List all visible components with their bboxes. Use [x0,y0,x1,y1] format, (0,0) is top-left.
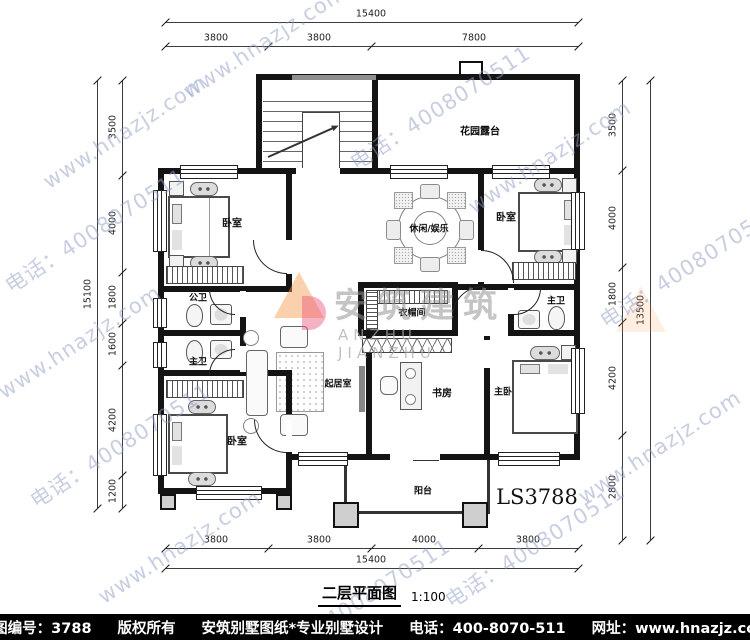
room-label-garden-terrace: 花园露台 [460,123,500,138]
dim-line [97,80,98,508]
dim-tick [118,361,126,369]
footer-site: 网址：www.hnazjz.com [592,617,750,638]
footer-copyright: 版权所有 [118,617,176,638]
bed [512,360,578,434]
dim-line [165,568,578,569]
dim-value: 1600 [108,332,119,356]
dim-tick [574,564,582,572]
bed [168,414,228,474]
dim-tick [618,536,626,544]
dim-value: 15400 [356,555,386,566]
dim-tick [574,544,582,552]
dim-tick [264,42,272,50]
toilet [186,304,203,327]
window [153,342,167,368]
door-arc [254,420,287,453]
dim-value: 4000 [412,535,436,546]
drawing-scale: 1:100 [411,590,446,607]
wall [358,282,458,288]
footer-number: 本图编号：3788 [0,617,92,638]
chair [420,184,440,199]
nightstand [562,178,577,193]
logo-triangle-icon [274,272,324,318]
nightstand-lamp [190,182,218,196]
room-label-leisure: 休闲/娱乐 [409,222,448,235]
room-label-bedroom-tr: 卧室 [496,209,516,224]
window [196,486,262,500]
desk-item [405,394,416,405]
dim-tick [118,76,126,84]
dim-line [622,80,623,540]
wall [358,330,458,336]
footer-phone: 电话：400-8070-511 [409,617,565,638]
wall [256,74,262,174]
window [153,414,167,476]
desk-chair [380,376,398,395]
dim-tick [574,18,582,26]
dim-tick [161,564,169,572]
window [390,165,448,179]
door-gap [240,346,246,372]
dim-tick [646,76,654,84]
window [153,190,167,252]
drawing-title: 二层平面图 [318,582,401,607]
room-label-bedroom-tl: 卧室 [222,215,242,230]
chair [394,247,413,264]
dim-value: 4200 [108,408,119,432]
window [153,298,167,328]
room-label-master-bath-left: 主卫 [189,355,207,368]
dim-value: 3800 [204,33,228,44]
balcony-slider-gap [390,454,440,460]
dim-value: 13500 [636,295,647,325]
door-arc [253,240,287,274]
nightstand [169,181,184,196]
rug [276,352,324,412]
dim-tick [618,263,626,271]
dim-tick [161,42,169,50]
dim-value: 3800 [516,535,540,546]
dim-value: 3800 [204,535,228,546]
pillow [172,204,182,224]
desk-lamp [405,368,416,379]
bed [168,196,230,258]
window [180,165,238,179]
door-gap [484,340,490,368]
wardrobe [368,290,448,304]
room-label-balcony: 阳台 [414,484,432,497]
dim-tick [367,544,375,552]
side-table [243,330,259,346]
porch-post [160,494,176,510]
window [492,165,550,179]
dim-value: 15400 [356,9,386,20]
dim-tick [618,431,626,439]
dim-value: 15100 [83,279,94,309]
door-arc [481,250,514,283]
nightstand-lamp [530,346,560,360]
dim-line [165,46,578,47]
dim-tick [618,76,626,84]
railing-screen [362,338,452,353]
room-label-bedroom-bl: 卧室 [227,433,247,448]
window [498,452,560,466]
wardrobe [166,380,244,398]
room-label-living: 起居室 [324,377,351,390]
dim-line [165,548,578,549]
chair [420,257,440,272]
dim-value: 1800 [108,285,119,309]
stair-landing [302,112,340,170]
chair [447,192,466,209]
dim-tick [618,166,626,174]
dim-tick [93,76,101,84]
dim-value: 3800 [307,535,331,546]
dim-value: 3500 [108,115,119,139]
dim-value: 4000 [108,211,119,235]
door-gap [296,168,340,174]
watermark-text: www.hnazjz.com [94,485,266,608]
dim-tick [618,318,626,326]
chair [386,220,401,240]
tv-cabinet [359,366,365,412]
dim-value: 2800 [608,475,619,499]
footer-bar: 本图编号：3788 版权所有 安筑别墅图纸*专业别墅设计 电话：400-8070… [0,614,750,640]
dim-tick [118,471,126,479]
pillow [172,422,182,441]
room-label-public-bath: 公卫 [189,291,207,304]
dim-value: 4200 [608,366,619,390]
dim-value: 3500 [608,113,619,137]
watermark-text: www.hnazjz.com [179,0,351,104]
dim-value: 7800 [462,33,486,44]
porch-post [276,494,292,510]
window [571,192,585,250]
toilet [548,306,565,330]
chair [447,247,466,264]
wardrobe [166,266,244,284]
dim-tick [646,536,654,544]
stair-top-window [292,75,376,80]
dim-line [122,80,123,508]
room-label-cloakroom: 衣帽间 [398,306,425,319]
dim-value: 1800 [608,282,619,306]
dim-tick [574,42,582,50]
room-label-master-bedroom: 主卧 [494,385,512,398]
nightstand-lamp [188,400,216,414]
balcony-post [333,502,359,528]
window [571,348,585,414]
dim-tick [118,319,126,327]
sofa [246,350,268,416]
wardrobe [512,262,576,280]
door-gap [240,291,246,317]
nightstand-lamp [188,472,216,486]
watermark-text: www.hnazjz.com [574,385,746,508]
plan-code: LS3788 [496,485,578,509]
footer-brand: 安筑别墅图纸*专业别墅设计 [202,617,384,638]
dim-tick [161,544,169,552]
pillow [520,364,540,374]
dim-tick [161,18,169,26]
dim-tick [264,544,272,552]
dim-tick [118,268,126,276]
armchair [280,326,308,348]
drawing-title-block: 二层平面图 1:100 [318,582,446,607]
dim-tick [118,171,126,179]
balcony-post [462,502,488,528]
logo-d-icon [302,296,326,330]
dim-line [165,22,578,23]
dim-tick [118,504,126,512]
chair [459,220,474,240]
wall [158,330,246,336]
wall [372,74,378,174]
blueprint-page: www.hnazjz.com 电话：4008070511 www.hnazjz.… [0,0,750,640]
room-label-study: 书房 [432,385,452,400]
dim-tick [367,42,375,50]
window [298,452,348,466]
bed [518,192,578,252]
dim-value: 1200 [108,479,119,503]
bed-fold [209,198,210,256]
wardrobe [366,290,378,330]
wall [358,282,364,336]
dim-tick [474,544,482,552]
nightstand-lamp [534,178,562,192]
chair [394,192,413,209]
wall [508,330,580,336]
dim-value: 3800 [307,33,331,44]
dim-value: 4000 [608,206,619,230]
room-label-master-bath-right: 主卫 [547,294,565,307]
dim-tick [93,504,101,512]
dim-line [650,80,651,540]
